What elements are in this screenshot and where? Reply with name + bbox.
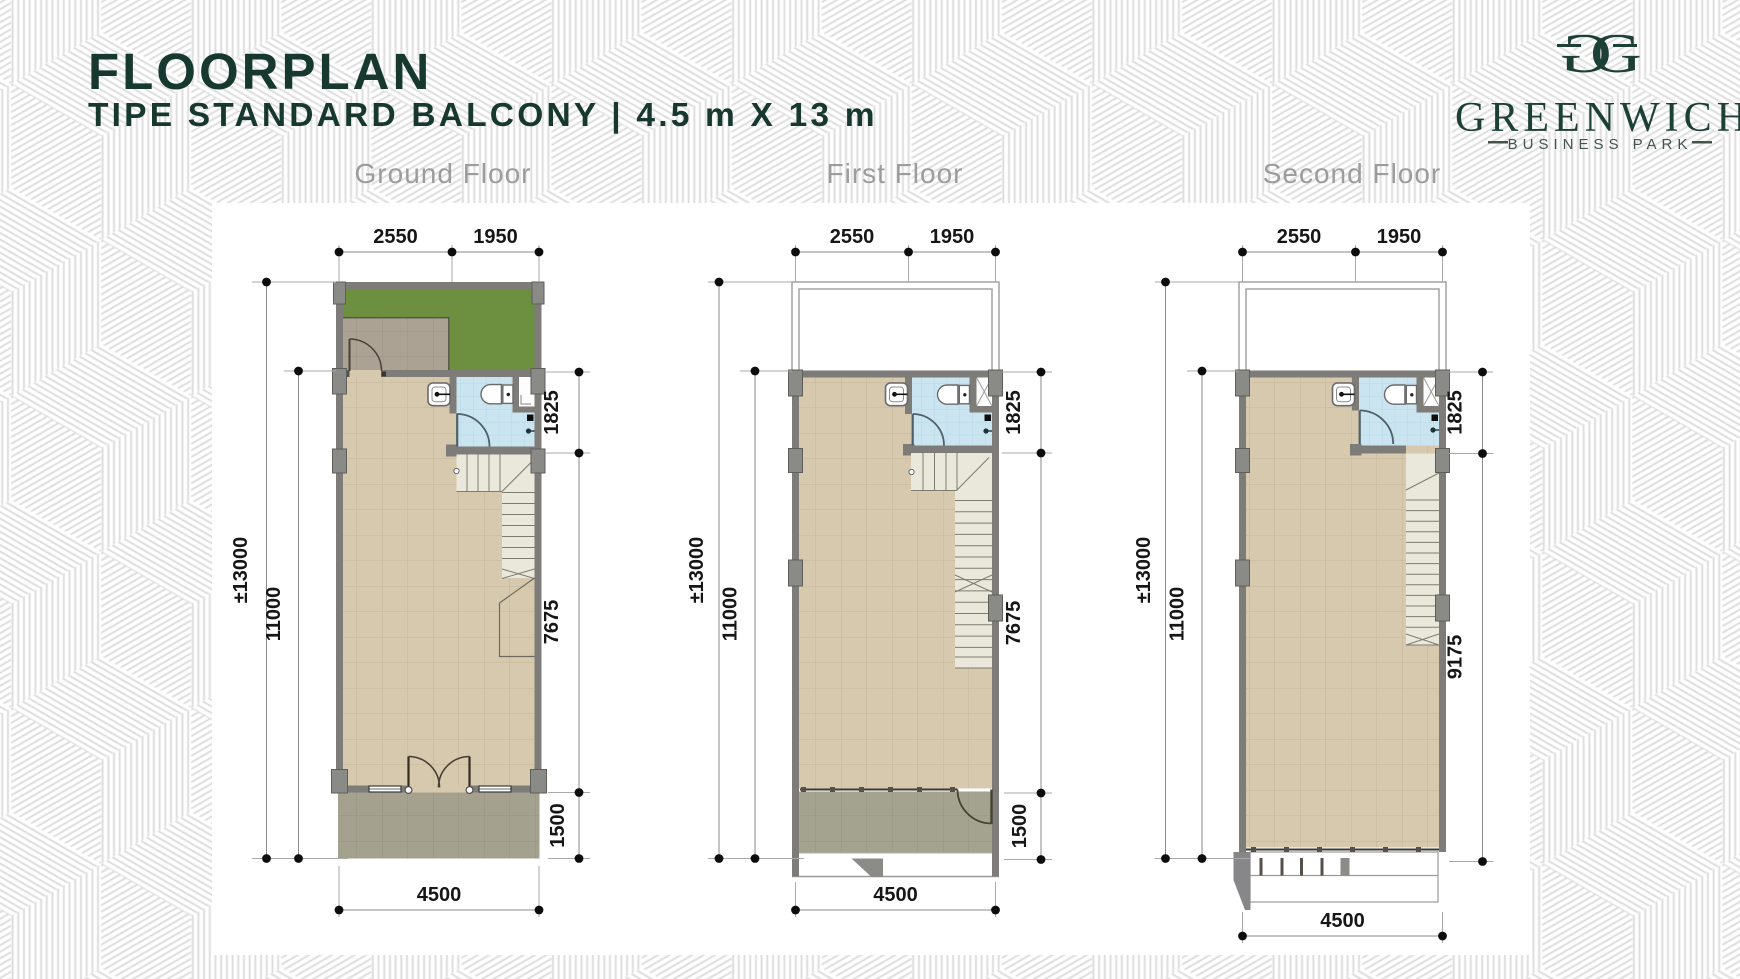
svg-text:TIPE STANDARD BALCONY | 4.5 m: TIPE STANDARD BALCONY | 4.5 m X 13 m [88,97,878,134]
svg-text:±13000: ±13000 [230,537,252,604]
svg-text:Ground Floor: Ground Floor [355,158,532,189]
svg-text:4500: 4500 [873,884,918,906]
svg-text:GREENWICH: GREENWICH [1455,95,1740,141]
svg-text:9175: 9175 [1445,635,1467,680]
svg-text:First Floor: First Floor [827,158,964,189]
svg-text:11000: 11000 [1167,587,1189,642]
svg-text:±13000: ±13000 [1133,537,1155,604]
svg-text:±13000: ±13000 [686,537,708,604]
svg-text:2550: 2550 [1277,226,1322,248]
svg-text:Second Floor: Second Floor [1263,158,1442,189]
svg-text:4500: 4500 [1320,910,1365,932]
svg-text:1500: 1500 [1009,804,1031,849]
svg-text:1950: 1950 [930,226,975,248]
svg-text:7675: 7675 [1003,601,1025,646]
svg-text:1950: 1950 [1377,226,1422,248]
svg-text:1950: 1950 [473,226,518,248]
svg-text:BUSINESS PARK: BUSINESS PARK [1508,136,1693,153]
svg-text:1825: 1825 [1445,390,1467,435]
svg-text:1825: 1825 [541,390,563,435]
svg-text:2550: 2550 [830,226,875,248]
svg-text:7675: 7675 [541,600,563,645]
svg-text:11000: 11000 [263,587,285,642]
svg-text:G: G [1590,22,1642,84]
svg-text:4500: 4500 [417,884,462,906]
svg-text:2550: 2550 [373,226,418,248]
svg-text:1825: 1825 [1003,390,1025,435]
svg-text:FLOORPLAN: FLOORPLAN [88,43,432,100]
svg-text:11000: 11000 [720,587,742,642]
svg-text:1500: 1500 [547,803,569,848]
